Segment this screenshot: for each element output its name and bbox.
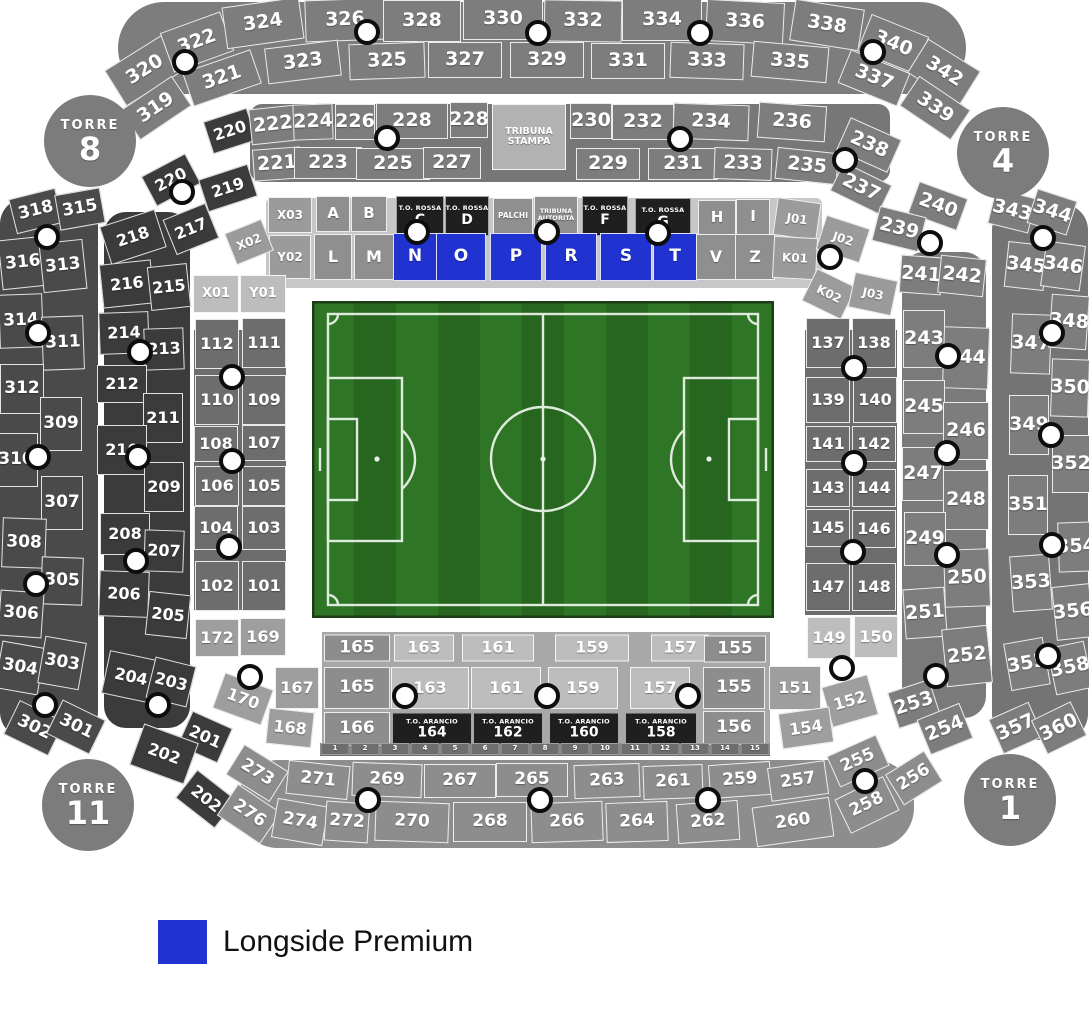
section-sub-label: T.O. ARANCIO [558, 718, 610, 725]
section-label: 203 [153, 670, 189, 694]
section-4[interactable]: 4 [411, 743, 440, 755]
gate-marker [145, 692, 171, 718]
section-label: 223 [308, 153, 348, 172]
section-206[interactable]: 206 [98, 570, 150, 618]
gate-marker [923, 663, 949, 689]
gate-marker [934, 542, 960, 568]
section-label: 235 [786, 154, 827, 177]
section-325[interactable]: 325 [348, 42, 425, 81]
section-140[interactable]: 140 [853, 377, 897, 423]
section-label: 8 [543, 745, 548, 752]
gate-marker [169, 179, 195, 205]
section-143[interactable]: 143 [806, 469, 850, 507]
section-8[interactable]: 8 [531, 743, 560, 755]
section-11[interactable]: 11 [621, 743, 650, 755]
section-label: 353 [1011, 572, 1052, 594]
section-label: 167 [280, 680, 313, 696]
gate-marker [1030, 225, 1056, 251]
section-y02[interactable]: Y02 [269, 235, 311, 279]
section-159[interactable]: 159 [555, 635, 629, 662]
section-101[interactable]: 101 [242, 561, 286, 611]
gate-marker [695, 787, 721, 813]
section-label: T [669, 248, 681, 265]
gate-marker [237, 664, 263, 690]
section-label: 327 [445, 50, 485, 69]
section-label: 234 [691, 112, 731, 133]
section-label: J03 [861, 286, 884, 302]
section-label: 202 [146, 741, 183, 768]
section-label: 160 [569, 726, 598, 740]
section-149[interactable]: 149 [807, 617, 851, 659]
section-label: 10 [600, 745, 610, 752]
section-233[interactable]: 233 [713, 147, 772, 181]
gate-marker [1038, 422, 1064, 448]
section-303[interactable]: 303 [37, 636, 87, 691]
section-2[interactable]: 2 [351, 743, 380, 755]
section-label: 159 [575, 640, 608, 656]
section-label: 205 [151, 605, 186, 625]
section-h[interactable]: H [698, 200, 736, 236]
section-333[interactable]: 333 [669, 42, 744, 81]
section-label: J01 [786, 211, 809, 226]
section-label: 3 [393, 745, 398, 752]
section-207[interactable]: 207 [143, 529, 184, 572]
tower-number: 11 [66, 797, 111, 829]
section-164[interactable]: T.O. ARANCIO164 [392, 713, 472, 746]
section-label: 139 [811, 392, 844, 408]
section-205[interactable]: 205 [145, 591, 191, 639]
section-p[interactable]: P [490, 233, 542, 281]
section-sub-label: T.O. ROSSA [584, 205, 627, 212]
tower-number: 4 [992, 145, 1014, 177]
section-label: 150 [859, 629, 892, 645]
gate-marker [34, 224, 60, 250]
section-label: 260 [774, 811, 812, 833]
section-211[interactable]: 211 [143, 393, 183, 443]
section-148[interactable]: 148 [852, 563, 896, 611]
section-label: 169 [246, 629, 279, 645]
section-219[interactable]: 219 [198, 164, 258, 212]
section-242[interactable]: 242 [937, 255, 987, 298]
section-label: 338 [806, 12, 848, 37]
section-label: 155 [716, 679, 752, 696]
gate-marker [1039, 320, 1065, 346]
section-312[interactable]: 312 [0, 364, 44, 414]
section-label: 158 [646, 726, 675, 740]
section-label: 11 [630, 745, 640, 752]
section-335[interactable]: 335 [751, 41, 830, 83]
section-label: 252 [946, 644, 987, 667]
section-label: 331 [608, 51, 648, 70]
section-label: 334 [642, 10, 682, 29]
section-label: 151 [778, 680, 811, 696]
section-261[interactable]: 261 [642, 764, 703, 800]
section-label: 301 [56, 711, 96, 742]
section-label: 309 [43, 415, 79, 432]
section-label: 318 [17, 198, 56, 223]
section-label: 225 [373, 154, 413, 173]
section-154[interactable]: 154 [778, 707, 835, 750]
section-label: 333 [687, 51, 727, 72]
section-109[interactable]: 109 [242, 375, 286, 425]
section-155[interactable]: 155 [703, 667, 765, 709]
section-label: X03 [277, 209, 303, 221]
section-268[interactable]: 268 [453, 802, 527, 842]
section-label: 161 [481, 640, 514, 656]
section-label: 157 [643, 680, 676, 696]
section-label: F [600, 213, 610, 227]
section-b[interactable]: B [351, 196, 387, 232]
section-label: 323 [282, 50, 324, 74]
section-label: 357 [994, 711, 1038, 745]
gate-marker [525, 20, 551, 46]
section-151[interactable]: 151 [769, 666, 821, 710]
section-label: 335 [769, 51, 810, 74]
section-9[interactable]: 9 [561, 743, 590, 755]
section-307[interactable]: 307 [41, 476, 83, 530]
section-label: 164 [417, 726, 446, 740]
section-155[interactable]: 155 [704, 636, 766, 663]
section-label: 204 [113, 666, 149, 689]
section-l[interactable]: L [314, 234, 352, 280]
section-label: K02 [815, 283, 844, 305]
section-350[interactable]: 350 [1050, 358, 1089, 417]
section-label: 266 [549, 813, 585, 832]
section-label: 220 [212, 118, 249, 144]
section-label: 226 [335, 112, 375, 131]
section-x03[interactable]: X03 [268, 197, 312, 233]
section-327[interactable]: 327 [428, 42, 502, 78]
section-270[interactable]: 270 [374, 801, 449, 844]
section-label: 246 [946, 421, 986, 440]
section-sub-label: T.O. ROSSA [446, 205, 489, 212]
section-1[interactable]: 1 [321, 743, 350, 755]
section-5[interactable]: 5 [441, 743, 470, 755]
section-label: 212 [105, 376, 138, 392]
section-label: 163 [413, 680, 446, 696]
section-236[interactable]: 236 [757, 102, 827, 143]
section-label: 159 [566, 680, 599, 696]
section-sub-label: T.O. ARANCIO [482, 718, 534, 725]
section-label: 263 [589, 772, 625, 791]
section-label: Z [749, 249, 761, 265]
section-331[interactable]: 331 [591, 43, 665, 79]
section-label: 268 [472, 813, 508, 830]
section-label: 142 [857, 436, 890, 452]
section-label: 272 [329, 812, 366, 832]
section-15[interactable]: 15 [741, 743, 770, 755]
section-224[interactable]: 224 [292, 103, 333, 140]
section-label: 207 [147, 542, 181, 559]
section-label: 6 [483, 745, 488, 752]
section-147[interactable]: 147 [806, 563, 850, 611]
section-163[interactable]: 163 [394, 635, 454, 662]
section-a[interactable]: A [316, 196, 350, 232]
section-235[interactable]: 235 [774, 147, 839, 185]
gate-marker [934, 440, 960, 466]
section-332[interactable]: 332 [544, 0, 623, 43]
section-label: 315 [61, 197, 99, 220]
section-161[interactable]: 161 [471, 667, 541, 709]
section-336[interactable]: 336 [705, 0, 785, 45]
section-sub-label: T.O. ARANCIO [635, 718, 687, 725]
section-267[interactable]: 267 [424, 764, 496, 798]
section-label: 209 [147, 479, 180, 495]
section-label: 157 [663, 640, 696, 656]
section-label: 154 [788, 718, 823, 739]
section-166[interactable]: 166 [324, 712, 390, 746]
section-label: 7 [513, 745, 518, 752]
section-label: Y01 [249, 287, 277, 300]
section-label: 137 [811, 335, 844, 351]
section-150[interactable]: 150 [854, 616, 898, 658]
gate-marker [354, 19, 380, 45]
section-label: 274 [281, 810, 319, 833]
section-label: 242 [941, 264, 982, 287]
section-label: 14 [720, 745, 730, 752]
section-167[interactable]: 167 [275, 667, 319, 709]
section-label: 312 [4, 380, 40, 397]
section-label: 156 [716, 719, 752, 736]
section-label: I [750, 209, 756, 224]
section-label: B [363, 206, 374, 221]
section-169[interactable]: 169 [240, 618, 286, 656]
section-label: 217 [172, 215, 209, 243]
section-248[interactable]: 248 [943, 470, 989, 530]
section-12[interactable]: 12 [651, 743, 680, 755]
section-229[interactable]: 229 [576, 148, 640, 180]
gate-marker [219, 448, 245, 474]
section-165[interactable]: 165 [324, 635, 390, 662]
section-label: 102 [200, 578, 233, 594]
gate-marker [23, 571, 49, 597]
section-label: 12 [660, 745, 670, 752]
section-label: 269 [369, 771, 405, 790]
section-v[interactable]: V [696, 234, 736, 280]
section-165[interactable]: 165 [324, 667, 390, 709]
section-156[interactable]: 156 [703, 711, 765, 745]
section-158[interactable]: T.O. ARANCIO158 [625, 713, 697, 746]
gate-marker [829, 655, 855, 681]
section-label: 106 [200, 478, 233, 494]
section-label: 147 [811, 579, 844, 595]
section-j01[interactable]: J01 [773, 197, 822, 241]
section-225[interactable]: 225 [356, 148, 430, 180]
section-j03[interactable]: J03 [848, 272, 899, 316]
section-label: 172 [200, 630, 233, 646]
section-label: 161 [489, 680, 522, 696]
section-245[interactable]: 245 [903, 380, 945, 434]
section-227[interactable]: 227 [423, 147, 481, 179]
section-label: PALCHI [498, 212, 528, 220]
section-label: 239 [877, 215, 920, 243]
section-label: 1 [333, 745, 338, 752]
section-160[interactable]: T.O. ARANCIO160 [549, 713, 619, 746]
section-label: 324 [242, 11, 284, 36]
section-label: 138 [857, 335, 890, 351]
section-157[interactable]: 157 [651, 635, 709, 662]
section-f[interactable]: T.O. ROSSAF [582, 196, 628, 236]
gate-marker [667, 126, 693, 152]
section-102[interactable]: 102 [195, 561, 239, 611]
section-label: 140 [858, 392, 891, 408]
section-sub-label: T.O. ROSSA [399, 205, 442, 212]
section-103[interactable]: 103 [242, 506, 286, 550]
section-label: 13 [690, 745, 700, 752]
gate-marker [675, 683, 701, 709]
section-139[interactable]: 139 [806, 377, 850, 423]
section-label: 141 [811, 436, 844, 452]
section-168[interactable]: 168 [265, 708, 315, 749]
section-13[interactable]: 13 [681, 743, 710, 755]
gate-marker [917, 230, 943, 256]
section-label: K01 [782, 251, 809, 265]
section-3[interactable]: 3 [381, 743, 410, 755]
section-label: 250 [947, 568, 987, 589]
section-y01[interactable]: Y01 [240, 275, 286, 313]
section-tribuna-stampa[interactable]: TRIBUNA STAMPA [492, 104, 566, 170]
section-6[interactable]: 6 [471, 743, 500, 755]
section-label: 254 [923, 713, 967, 746]
section-111[interactable]: 111 [242, 318, 286, 368]
section-7[interactable]: 7 [501, 743, 530, 755]
section-223[interactable]: 223 [294, 147, 362, 179]
legend: Longside Premium [158, 920, 473, 964]
gate-marker [841, 355, 867, 381]
gate-marker [527, 787, 553, 813]
section-label: 258 [847, 789, 887, 820]
section-label: 344 [1030, 197, 1074, 228]
section-label: 228 [449, 110, 489, 129]
section-label: 227 [432, 153, 472, 172]
section-228[interactable]: 228 [450, 102, 488, 138]
section-d[interactable]: T.O. ROSSAD [445, 196, 489, 236]
section-232[interactable]: 232 [612, 104, 674, 140]
section-label: V [710, 249, 722, 265]
section-226[interactable]: 226 [335, 104, 375, 140]
section-label: 330 [483, 9, 523, 28]
section-159[interactable]: 159 [548, 667, 618, 709]
section-161[interactable]: 161 [462, 635, 534, 662]
section-label: 336 [725, 11, 766, 32]
section-label: X01 [202, 287, 230, 300]
section-label: 233 [723, 154, 763, 175]
section-label: 264 [619, 813, 655, 832]
section-label: 329 [527, 50, 567, 69]
section-label: 155 [717, 640, 753, 657]
section-209[interactable]: 209 [144, 462, 184, 512]
section-k01[interactable]: K01 [772, 236, 818, 280]
section-263[interactable]: 263 [573, 763, 640, 799]
section-m[interactable]: M [354, 234, 394, 280]
section-309[interactable]: 309 [40, 397, 82, 451]
gate-marker [935, 343, 961, 369]
gate-marker [25, 320, 51, 346]
section-328[interactable]: 328 [383, 0, 461, 42]
section-107[interactable]: 107 [242, 425, 286, 461]
section-230[interactable]: 230 [570, 103, 612, 139]
gate-marker [1039, 532, 1065, 558]
section-palchi[interactable]: PALCHI [493, 198, 533, 234]
section-label: O [454, 248, 468, 265]
section-label: N [408, 248, 422, 265]
section-172[interactable]: 172 [195, 619, 239, 657]
gate-marker [534, 683, 560, 709]
section-label: S [620, 248, 632, 265]
gate-marker [219, 364, 245, 390]
gate-marker [127, 339, 153, 365]
section-label: 303 [43, 651, 81, 674]
section-label: 111 [247, 335, 280, 351]
gate-marker [852, 768, 878, 794]
section-i[interactable]: I [736, 199, 770, 235]
tower-number: 1 [999, 792, 1021, 824]
section-label: D [461, 213, 473, 227]
section-label: 352 [1051, 454, 1089, 473]
section-215[interactable]: 215 [147, 263, 191, 311]
gate-marker [404, 219, 430, 245]
section-label: 247 [903, 464, 943, 483]
section-264[interactable]: 264 [605, 801, 668, 843]
section-label: 262 [690, 812, 727, 832]
section-353[interactable]: 353 [1009, 554, 1053, 613]
legend-label: Longside Premium [223, 925, 473, 959]
gate-marker [216, 534, 242, 560]
section-208[interactable]: 208 [100, 513, 150, 555]
section-14[interactable]: 14 [711, 743, 740, 755]
section-212[interactable]: 212 [97, 365, 147, 403]
section-label: 15 [750, 745, 760, 752]
section-label: 145 [811, 520, 844, 536]
section-s[interactable]: S [600, 233, 652, 281]
section-351[interactable]: 351 [1008, 475, 1048, 535]
section-label: 248 [946, 490, 986, 509]
section-label: 304 [1, 656, 39, 679]
section-271[interactable]: 271 [285, 760, 350, 800]
gate-marker [1035, 643, 1061, 669]
section-112[interactable]: 112 [195, 319, 239, 369]
tower-1: TORRE1 [964, 754, 1056, 846]
section-label: 105 [247, 478, 280, 494]
section-222[interactable]: 222 [248, 105, 298, 146]
section-356[interactable]: 356 [1051, 583, 1089, 641]
section-label: 211 [146, 410, 179, 426]
section-308[interactable]: 308 [1, 517, 47, 569]
section-10[interactable]: 10 [591, 743, 620, 755]
section-x01[interactable]: X01 [193, 275, 239, 313]
section-z[interactable]: Z [735, 234, 775, 280]
section-162[interactable]: T.O. ARANCIO162 [473, 713, 543, 746]
section-o[interactable]: O [436, 233, 486, 281]
gate-marker [817, 244, 843, 270]
section-label: 316 [4, 253, 41, 274]
section-label: 245 [904, 397, 944, 416]
section-label: 166 [339, 720, 375, 737]
section-329[interactable]: 329 [510, 42, 584, 78]
section-label: 356 [1052, 600, 1089, 623]
section-label: 148 [857, 579, 890, 595]
section-315[interactable]: 315 [54, 187, 106, 230]
section-label: 149 [812, 630, 845, 646]
section-105[interactable]: 105 [242, 466, 286, 506]
section-label: X02 [235, 231, 264, 252]
section-label: 271 [299, 770, 336, 791]
section-label: 165 [339, 679, 375, 696]
section-label: 360 [1037, 711, 1081, 746]
gate-marker [32, 692, 58, 718]
section-231[interactable]: 231 [648, 148, 718, 180]
section-label: 306 [3, 604, 40, 624]
